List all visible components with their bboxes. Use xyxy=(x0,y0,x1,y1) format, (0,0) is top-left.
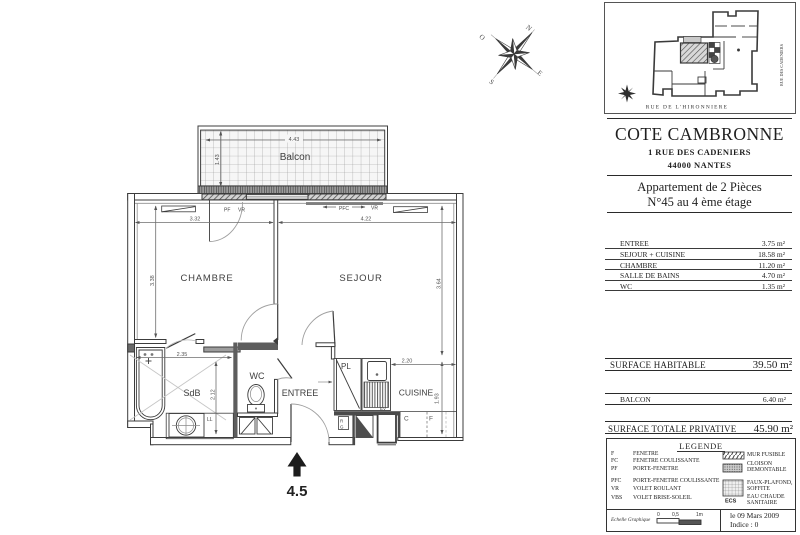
svg-text:2.35: 2.35 xyxy=(177,352,188,358)
svg-text:VR: VR xyxy=(238,208,245,214)
svg-text:O: O xyxy=(477,33,486,42)
svg-text:4.43: 4.43 xyxy=(289,137,300,143)
svg-text:LL: LL xyxy=(207,417,213,423)
svg-text:EV: EV xyxy=(380,406,386,411)
svg-text:0: 0 xyxy=(657,512,660,518)
svg-text:ECS: ECS xyxy=(725,498,737,504)
svg-text:3.38: 3.38 xyxy=(150,275,156,286)
svg-text:RUE DE L'HIRONNIERE: RUE DE L'HIRONNIERE xyxy=(646,105,729,111)
svg-text:CUISINE: CUISINE xyxy=(399,388,434,398)
svg-text:RUE DES CADENIERS: RUE DES CADENIERS xyxy=(779,43,784,86)
svg-text:2.12: 2.12 xyxy=(211,389,217,400)
svg-text:G: G xyxy=(340,425,344,430)
svg-text:1.43: 1.43 xyxy=(215,154,221,165)
svg-text:3.32: 3.32 xyxy=(190,217,201,223)
svg-text:SEJOUR: SEJOUR xyxy=(339,273,382,284)
svg-text:4.5: 4.5 xyxy=(287,483,308,500)
svg-text:ENTREE: ENTREE xyxy=(282,388,319,398)
svg-text:1.93: 1.93 xyxy=(435,393,441,404)
svg-text:0,5: 0,5 xyxy=(672,512,679,518)
svg-text:SdB: SdB xyxy=(183,388,200,398)
svg-text:CHAMBRE: CHAMBRE xyxy=(180,273,233,284)
svg-text:E: E xyxy=(535,69,543,78)
svg-text:Balcon: Balcon xyxy=(280,152,311,163)
svg-text:S: S xyxy=(487,78,495,87)
svg-text:1m: 1m xyxy=(696,512,703,518)
svg-text:3.64: 3.64 xyxy=(437,278,443,289)
svg-text:F: F xyxy=(429,416,433,423)
svg-text:4.22: 4.22 xyxy=(361,217,372,223)
svg-text:2.20: 2.20 xyxy=(402,359,413,365)
svg-text:C: C xyxy=(404,416,409,423)
svg-text:WC: WC xyxy=(250,371,265,381)
svg-text:N: N xyxy=(524,23,533,32)
svg-text:VR: VR xyxy=(371,206,378,212)
svg-text:PF: PF xyxy=(224,208,230,214)
svg-text:PL: PL xyxy=(341,362,351,371)
svg-text:PFC: PFC xyxy=(339,206,349,212)
